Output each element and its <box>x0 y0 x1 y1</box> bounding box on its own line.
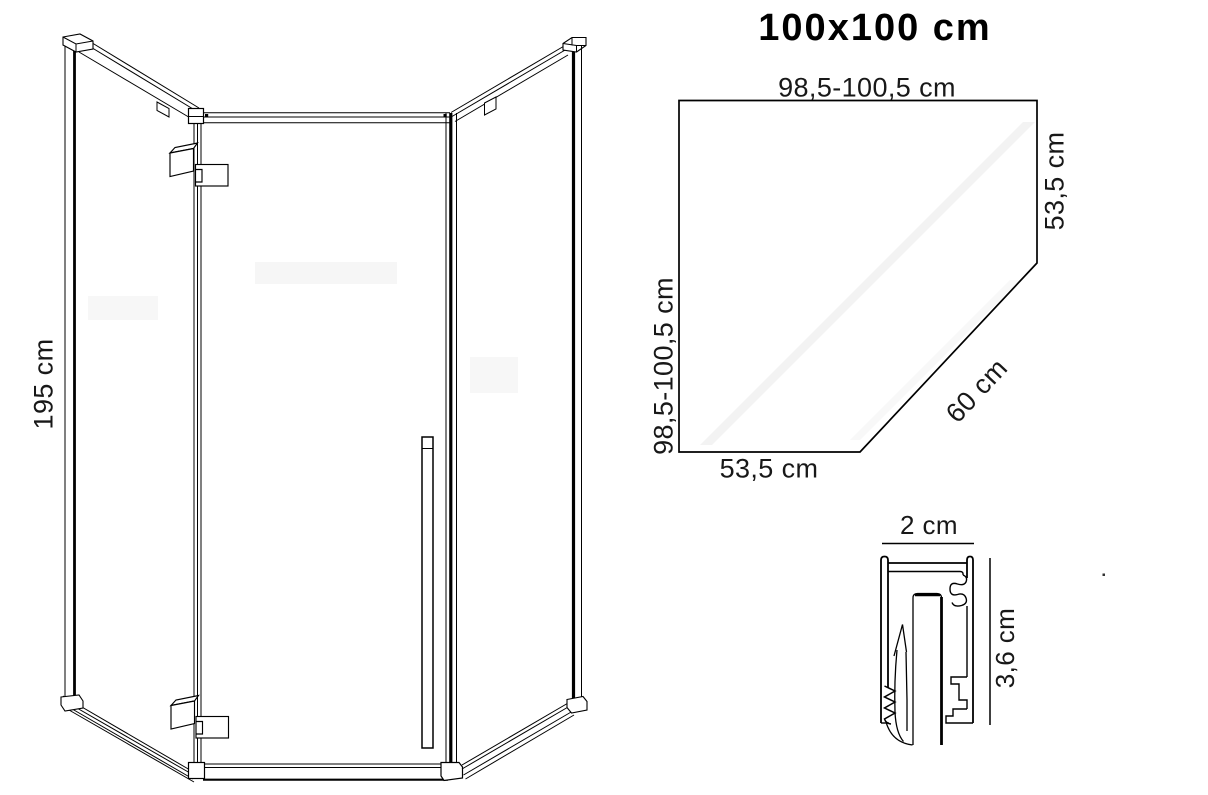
door-hinge-bottom <box>171 696 229 739</box>
door-panel <box>170 109 463 781</box>
plan-left-depth-label: 98,5-100,5 cm <box>651 277 678 455</box>
plan-right-side-label: 53,5 cm <box>1042 132 1069 231</box>
left-side-panel <box>61 34 199 782</box>
door-hinge-top <box>170 143 228 186</box>
diagram-title: 100x100 cm <box>758 9 991 47</box>
plan-top-width-label: 98,5-100,5 cm <box>778 75 956 102</box>
glass-reflections <box>88 262 518 393</box>
profile-depth-label: 3,6 cm <box>992 608 1018 688</box>
shower-dimension-diagram: 195 cm 100x100 cm 98,5-100,5 cm 98,5-100… <box>0 0 1208 795</box>
print-speck <box>1103 574 1106 577</box>
height-label: 195 cm <box>31 339 58 430</box>
shower-3d-drawing <box>61 34 587 782</box>
diagram-linework <box>0 0 1208 795</box>
glass-pane-section <box>913 594 942 746</box>
door-handle <box>422 437 433 748</box>
right-side-panel <box>451 38 587 780</box>
plan-bottom-side-label: 53,5 cm <box>720 456 819 483</box>
profile-width-label: 2 cm <box>900 512 958 538</box>
